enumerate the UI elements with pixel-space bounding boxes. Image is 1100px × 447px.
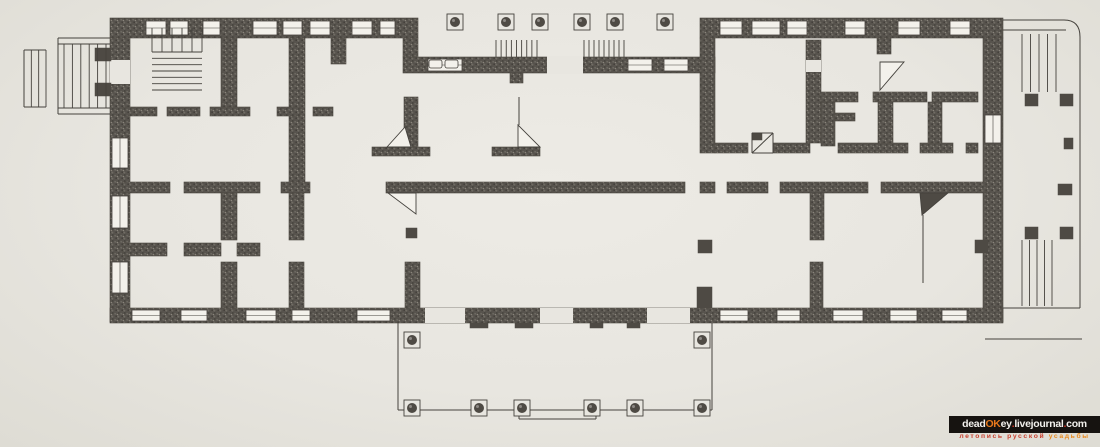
- column-shaft: [517, 403, 527, 413]
- wall-segment: [221, 262, 237, 308]
- wall-segment: [838, 143, 908, 153]
- pier: [975, 240, 988, 253]
- watermark-text-segment: OK: [985, 419, 1000, 430]
- column: [447, 14, 463, 30]
- wall-segment: [700, 38, 715, 153]
- wall-segment: [878, 102, 893, 145]
- wall-segment: [210, 107, 250, 116]
- wall-segment: [123, 182, 170, 193]
- wall-segment: [510, 73, 523, 83]
- floor-plan-drawing: [0, 0, 1100, 447]
- wall-segment: [873, 92, 927, 102]
- column: [657, 14, 673, 30]
- column: [607, 14, 623, 30]
- stairs: [1022, 240, 1052, 306]
- wall-segment: [932, 92, 978, 102]
- wall-segment: [835, 113, 855, 121]
- watermark-text-segment: усадьбы: [1049, 433, 1090, 440]
- column-shaft: [535, 17, 545, 27]
- watermark-text-segment: летопись русской: [959, 433, 1048, 440]
- column-shaft: [630, 403, 640, 413]
- column-highlight: [409, 405, 412, 408]
- wall-segment: [184, 243, 221, 256]
- pier: [752, 133, 762, 140]
- wall-segment: [773, 143, 810, 153]
- column: [471, 400, 487, 416]
- pier: [470, 323, 488, 328]
- wall-opening: [647, 308, 690, 323]
- column-highlight: [503, 19, 506, 22]
- wall-segment: [806, 40, 821, 143]
- wall-segment: [221, 38, 237, 107]
- column-highlight: [699, 405, 702, 408]
- stairs: [496, 40, 537, 57]
- column: [694, 332, 710, 348]
- wall-segment: [881, 182, 986, 193]
- pier: [697, 287, 712, 308]
- watermark-tagline: летопись русской усадьбы: [949, 434, 1100, 441]
- pier: [406, 228, 417, 238]
- wall-segment: [237, 243, 260, 256]
- wall-opening: [110, 60, 130, 84]
- column-shaft: [474, 403, 484, 413]
- columns-layer: [404, 14, 710, 416]
- stairs: [152, 52, 202, 90]
- wall-segment: [928, 102, 942, 145]
- corner-stove: [518, 125, 540, 147]
- terrace-outline: [1003, 20, 1080, 308]
- column-highlight: [579, 19, 582, 22]
- column: [404, 400, 420, 416]
- wall-segment: [780, 182, 868, 193]
- pier: [698, 240, 712, 253]
- column-shaft: [610, 17, 620, 27]
- column: [627, 400, 643, 416]
- column: [532, 14, 548, 30]
- outline-layer: [24, 20, 1082, 419]
- wall-segment: [966, 143, 978, 153]
- wall-segment: [920, 143, 953, 153]
- wall-segment: [715, 143, 748, 153]
- wall-segment: [372, 147, 430, 156]
- column-highlight: [537, 19, 540, 22]
- wall-segment: [700, 182, 715, 193]
- pier: [1060, 94, 1073, 106]
- wall-segment: [184, 182, 260, 193]
- wall-segment: [405, 262, 420, 308]
- watermark-text-segment: com: [1066, 419, 1087, 430]
- wall-segment: [821, 102, 835, 146]
- wall-segment: [877, 38, 891, 54]
- wall-segment: [727, 182, 768, 193]
- wall-opening: [547, 56, 583, 74]
- wall-opening: [425, 308, 465, 323]
- wall-segment: [983, 38, 1003, 322]
- wall-segment: [492, 147, 540, 156]
- column-highlight: [699, 337, 702, 340]
- wall-segment: [289, 193, 304, 240]
- wall-segment: [810, 262, 823, 308]
- column: [498, 14, 514, 30]
- wall-segment: [403, 38, 418, 57]
- wall-segment: [289, 262, 304, 308]
- stairs: [1022, 34, 1056, 92]
- pier: [1025, 94, 1038, 106]
- wall-segment: [820, 92, 858, 102]
- column-shaft: [407, 335, 417, 345]
- wall-segment: [167, 107, 200, 116]
- wall-segment: [123, 107, 157, 116]
- watermark-text-segment: dead: [962, 419, 985, 430]
- column-shaft: [587, 403, 597, 413]
- wall-segment: [386, 182, 418, 193]
- corner-stove: [388, 193, 416, 214]
- pier: [1064, 138, 1073, 149]
- column: [584, 400, 600, 416]
- watermark-text-segment: livejournal: [1014, 419, 1063, 430]
- wall-opening: [540, 308, 573, 323]
- door-leaf: [445, 60, 458, 68]
- column-highlight: [632, 405, 635, 408]
- column-shaft: [407, 403, 417, 413]
- pier: [1025, 227, 1038, 239]
- column: [574, 14, 590, 30]
- column-shaft: [660, 17, 670, 27]
- wall-segment: [281, 182, 310, 193]
- column: [694, 400, 710, 416]
- pier: [1060, 227, 1073, 239]
- wall-segment: [277, 107, 300, 116]
- pier: [1058, 184, 1072, 195]
- wall-segment: [123, 243, 167, 256]
- column-highlight: [519, 405, 522, 408]
- wall-segment: [810, 193, 824, 240]
- corner-stove: [880, 62, 904, 90]
- column: [514, 400, 530, 416]
- column-highlight: [476, 405, 479, 408]
- pier: [515, 323, 533, 328]
- column-shaft: [697, 335, 707, 345]
- column-highlight: [589, 405, 592, 408]
- stairs: [24, 50, 46, 107]
- wall-segment: [418, 182, 685, 193]
- stairs: [584, 40, 624, 57]
- watermark-text-segment: ey: [1001, 419, 1012, 430]
- column-highlight: [409, 337, 412, 340]
- watermark-url: deadOKey.livejournal.com: [949, 416, 1100, 433]
- pier: [590, 323, 603, 328]
- column-highlight: [662, 19, 665, 22]
- column-shaft: [501, 17, 511, 27]
- column-highlight: [612, 19, 615, 22]
- column-shaft: [450, 17, 460, 27]
- column-shaft: [577, 17, 587, 27]
- wall-opening: [806, 60, 821, 72]
- wall-segment: [313, 107, 333, 116]
- watermark: deadOKey.livejournal.com летопись русско…: [949, 416, 1100, 441]
- corner-stove: [920, 193, 948, 215]
- column-highlight: [452, 19, 455, 22]
- pier: [627, 323, 640, 328]
- column-shaft: [697, 403, 707, 413]
- door-leaf: [429, 60, 442, 68]
- wall-segment: [221, 193, 237, 240]
- scanned-floor-plan: deadOKey.livejournal.com летопись русско…: [0, 0, 1100, 447]
- column: [404, 332, 420, 348]
- wall-segment: [331, 38, 346, 64]
